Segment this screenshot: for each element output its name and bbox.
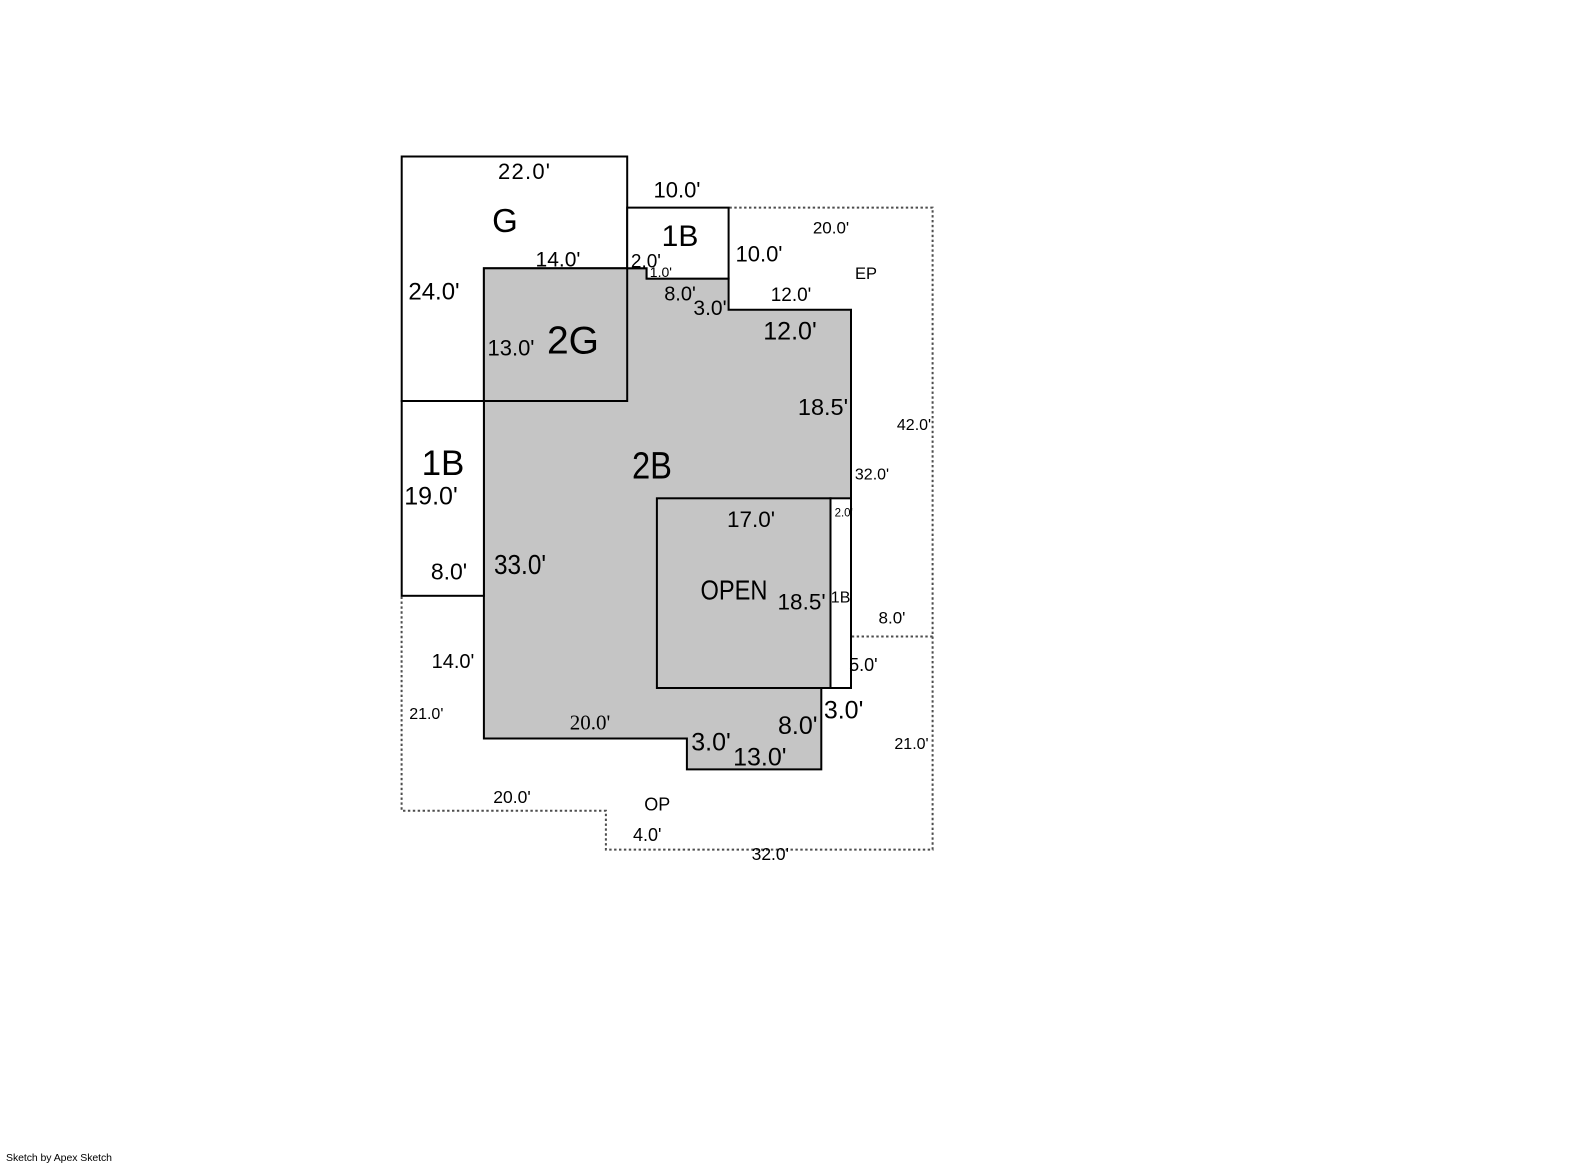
svg-text:OP: OP [644, 795, 670, 815]
svg-text:3.0': 3.0' [824, 697, 864, 725]
svg-text:21.0': 21.0' [409, 706, 443, 723]
svg-text:3.0': 3.0' [691, 729, 731, 757]
svg-text:17.0': 17.0' [727, 507, 775, 532]
svg-text:10.0': 10.0' [735, 242, 782, 267]
svg-text:32.0': 32.0' [855, 467, 889, 484]
svg-text:8.0': 8.0' [778, 712, 818, 740]
svg-text:14.0': 14.0' [536, 249, 581, 272]
svg-text:4.0': 4.0' [633, 825, 661, 845]
svg-text:EP: EP [855, 265, 877, 283]
svg-text:14.0': 14.0' [432, 651, 475, 673]
svg-text:10.0': 10.0' [653, 177, 700, 202]
svg-text:2G: 2G [547, 319, 599, 362]
svg-text:1.0': 1.0' [650, 264, 672, 280]
svg-text:20.0': 20.0' [570, 711, 611, 735]
svg-text:13.0': 13.0' [733, 744, 786, 772]
svg-text:2.0': 2.0' [835, 507, 853, 519]
svg-text:19.0': 19.0' [404, 483, 457, 511]
svg-text:8.0': 8.0' [664, 283, 696, 305]
svg-text:20.0': 20.0' [493, 787, 530, 807]
svg-text:1B: 1B [662, 220, 699, 253]
svg-text:20.0': 20.0' [813, 219, 849, 238]
svg-text:3.0': 3.0' [693, 297, 726, 320]
svg-text:8.0': 8.0' [879, 609, 906, 628]
svg-text:18.5': 18.5' [798, 394, 848, 420]
svg-text:1B: 1B [422, 444, 465, 483]
svg-text:12.0': 12.0' [763, 318, 816, 346]
svg-text:1B: 1B [831, 590, 851, 607]
svg-text:13.0': 13.0' [487, 335, 534, 360]
svg-text:33.0': 33.0' [494, 549, 546, 580]
svg-text:18.5': 18.5' [778, 590, 826, 615]
svg-text:8.0': 8.0' [431, 559, 467, 585]
svg-text:21.0': 21.0' [894, 736, 928, 753]
svg-text:24.0': 24.0' [408, 279, 459, 306]
svg-text:32.0': 32.0' [752, 844, 789, 864]
svg-text:OPEN: OPEN [701, 575, 768, 606]
svg-text:5.0': 5.0' [849, 655, 877, 675]
svg-text:22.0': 22.0' [498, 159, 550, 184]
svg-text:G: G [492, 202, 518, 239]
svg-text:42.0': 42.0' [897, 417, 931, 434]
svg-text:12.0': 12.0' [771, 285, 812, 306]
svg-text:2B: 2B [632, 445, 672, 487]
svg-text:Sketch by Apex Sketch: Sketch by Apex Sketch [6, 1152, 112, 1163]
